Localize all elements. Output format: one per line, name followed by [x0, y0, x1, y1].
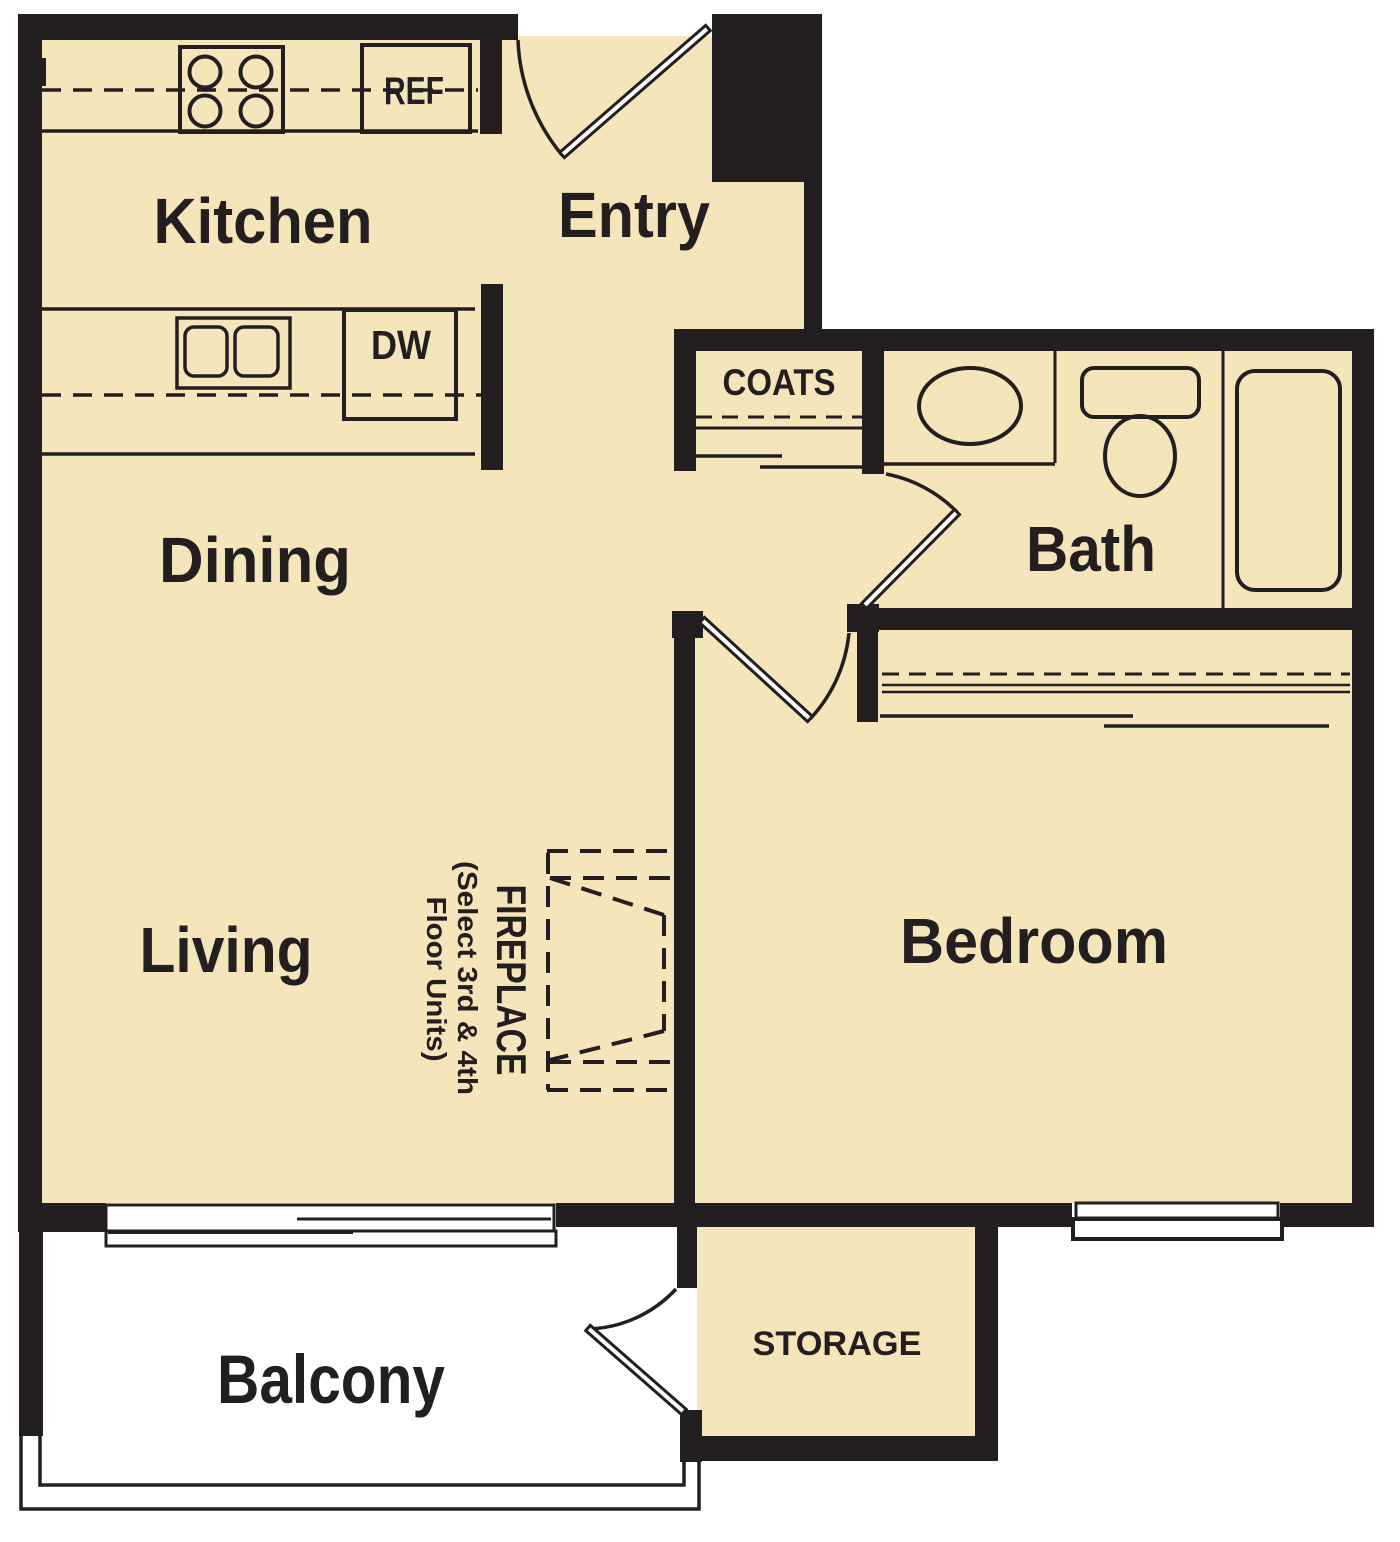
svg-text:Bath: Bath: [1026, 513, 1156, 585]
svg-text:DW: DW: [371, 322, 431, 368]
svg-text:Bedroom: Bedroom: [900, 905, 1168, 977]
svg-text:(Select 3rd & 4th: (Select 3rd & 4th: [452, 861, 483, 1095]
svg-text:Balcony: Balcony: [217, 1341, 445, 1418]
svg-text:REF: REF: [384, 70, 444, 113]
svg-text:Living: Living: [140, 914, 313, 986]
svg-text:Dining: Dining: [159, 524, 351, 596]
svg-text:COATS: COATS: [723, 362, 836, 403]
svg-text:FIREPLACE: FIREPLACE: [488, 885, 535, 1076]
svg-text:Entry: Entry: [558, 179, 710, 251]
svg-text:Floor Units): Floor Units): [421, 897, 452, 1062]
svg-text:STORAGE: STORAGE: [753, 1325, 922, 1363]
svg-text:Kitchen: Kitchen: [154, 185, 373, 257]
